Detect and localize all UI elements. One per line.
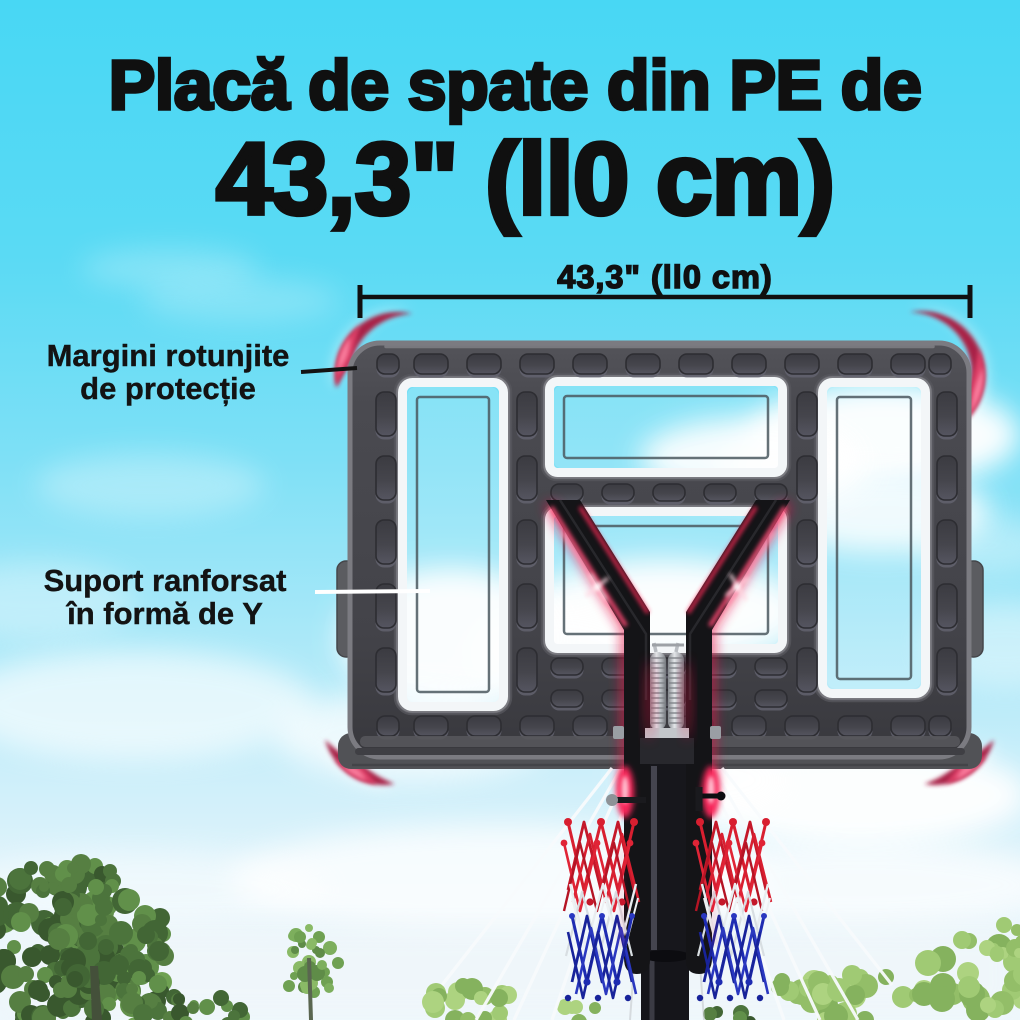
svg-text:43,3" (ll0 cm): 43,3" (ll0 cm) [216,122,834,236]
svg-text:Placă de spate din PE de: Placă de spate din PE de [109,46,922,124]
svg-text:de protecție: de protecție [80,371,256,406]
svg-text:Margini rotunjite: Margini rotunjite [47,338,290,373]
svg-text:43,3" (ll0 cm): 43,3" (ll0 cm) [557,259,772,295]
svg-text:în formă de Y: în formă de Y [65,596,263,631]
svg-text:Suport ranforsat: Suport ranforsat [44,563,287,598]
